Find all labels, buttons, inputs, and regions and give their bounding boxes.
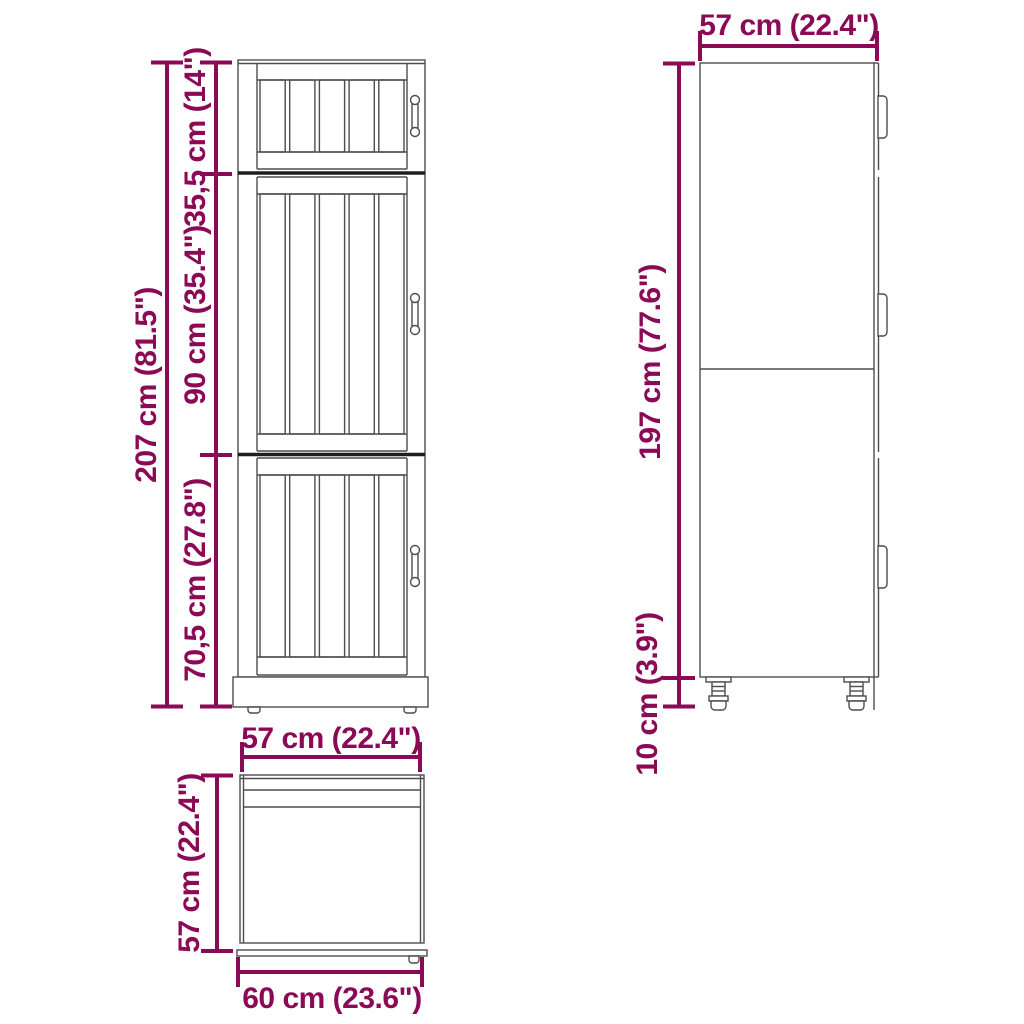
door-handle-icon	[411, 546, 420, 587]
side-view-drawing	[700, 63, 887, 710]
top-view-depth-label: 57 cm (22.4")	[175, 773, 205, 953]
side-leg-height-label: 10 cm (3.9")	[633, 612, 663, 775]
front-bottom-section-label: 70,5 cm (27.8")	[181, 478, 211, 682]
front-top-section-label: 35,5 cm (14")	[181, 47, 211, 227]
top-view-total-depth-label: 60 cm (23.6")	[242, 984, 422, 1014]
front-door-bottom	[257, 458, 420, 675]
cabinet-dimension-diagram: 207 cm (81.5") 35,5 cm (14") 90 cm (35.4…	[0, 0, 1024, 1024]
front-door-middle	[257, 177, 420, 451]
top-view-drawing	[237, 775, 427, 963]
door-handle-icon	[411, 96, 420, 137]
cabinet-foot-icon	[248, 707, 260, 713]
side-body-height-label: 197 cm (77.6")	[636, 264, 666, 460]
top-view-width-label: 57 cm (22.4")	[241, 724, 421, 754]
side-handle-icon	[878, 546, 887, 588]
side-width-label: 57 cm (22.4")	[699, 11, 879, 41]
cabinet-plinth	[233, 677, 428, 707]
front-total-height-label: 207 cm (81.5")	[132, 287, 162, 483]
top-view-foot-icon	[409, 956, 419, 963]
side-handle-icon	[878, 96, 887, 138]
side-handle-icon	[878, 294, 887, 336]
front-middle-section-label: 90 cm (35.4")	[181, 225, 211, 405]
adjustable-leg-icon	[844, 677, 869, 710]
door-handle-icon	[411, 294, 420, 335]
top-view-plinth-edge	[237, 950, 427, 956]
adjustable-leg-icon	[706, 677, 731, 710]
diagram-line-art	[0, 0, 1024, 1024]
front-door-top	[257, 63, 420, 169]
front-view-drawing	[233, 60, 428, 713]
cabinet-foot-icon	[404, 707, 416, 713]
